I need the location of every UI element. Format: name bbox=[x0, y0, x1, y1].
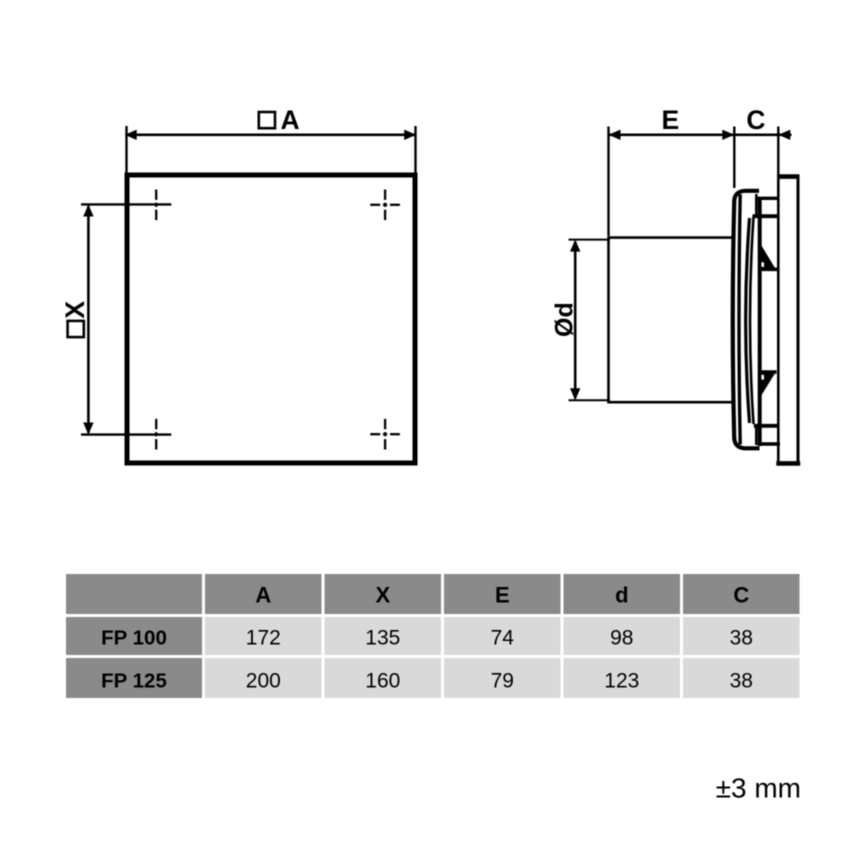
svg-text:135: 135 bbox=[365, 627, 400, 650]
svg-text:X: X bbox=[375, 583, 390, 608]
svg-text:E: E bbox=[661, 105, 679, 135]
svg-text:±3 mm: ±3 mm bbox=[716, 773, 801, 804]
svg-text:74: 74 bbox=[491, 627, 515, 650]
svg-text:98: 98 bbox=[610, 627, 633, 650]
svg-text:A: A bbox=[255, 583, 271, 608]
svg-text:d: d bbox=[615, 583, 628, 608]
svg-text:FP 100: FP 100 bbox=[101, 627, 167, 650]
svg-text:E: E bbox=[495, 583, 510, 608]
svg-text:38: 38 bbox=[730, 669, 753, 692]
svg-text:C: C bbox=[746, 105, 765, 135]
svg-text:X: X bbox=[60, 301, 90, 319]
svg-text:Ød: Ød bbox=[551, 302, 579, 337]
svg-text:200: 200 bbox=[246, 669, 281, 692]
svg-text:79: 79 bbox=[491, 669, 514, 692]
svg-text:172: 172 bbox=[246, 627, 281, 650]
svg-text:123: 123 bbox=[604, 669, 639, 692]
svg-text:FP 125: FP 125 bbox=[101, 669, 167, 692]
svg-text:160: 160 bbox=[365, 669, 400, 692]
svg-text:38: 38 bbox=[730, 627, 753, 650]
svg-text:C: C bbox=[733, 583, 749, 608]
svg-text:A: A bbox=[281, 105, 300, 135]
